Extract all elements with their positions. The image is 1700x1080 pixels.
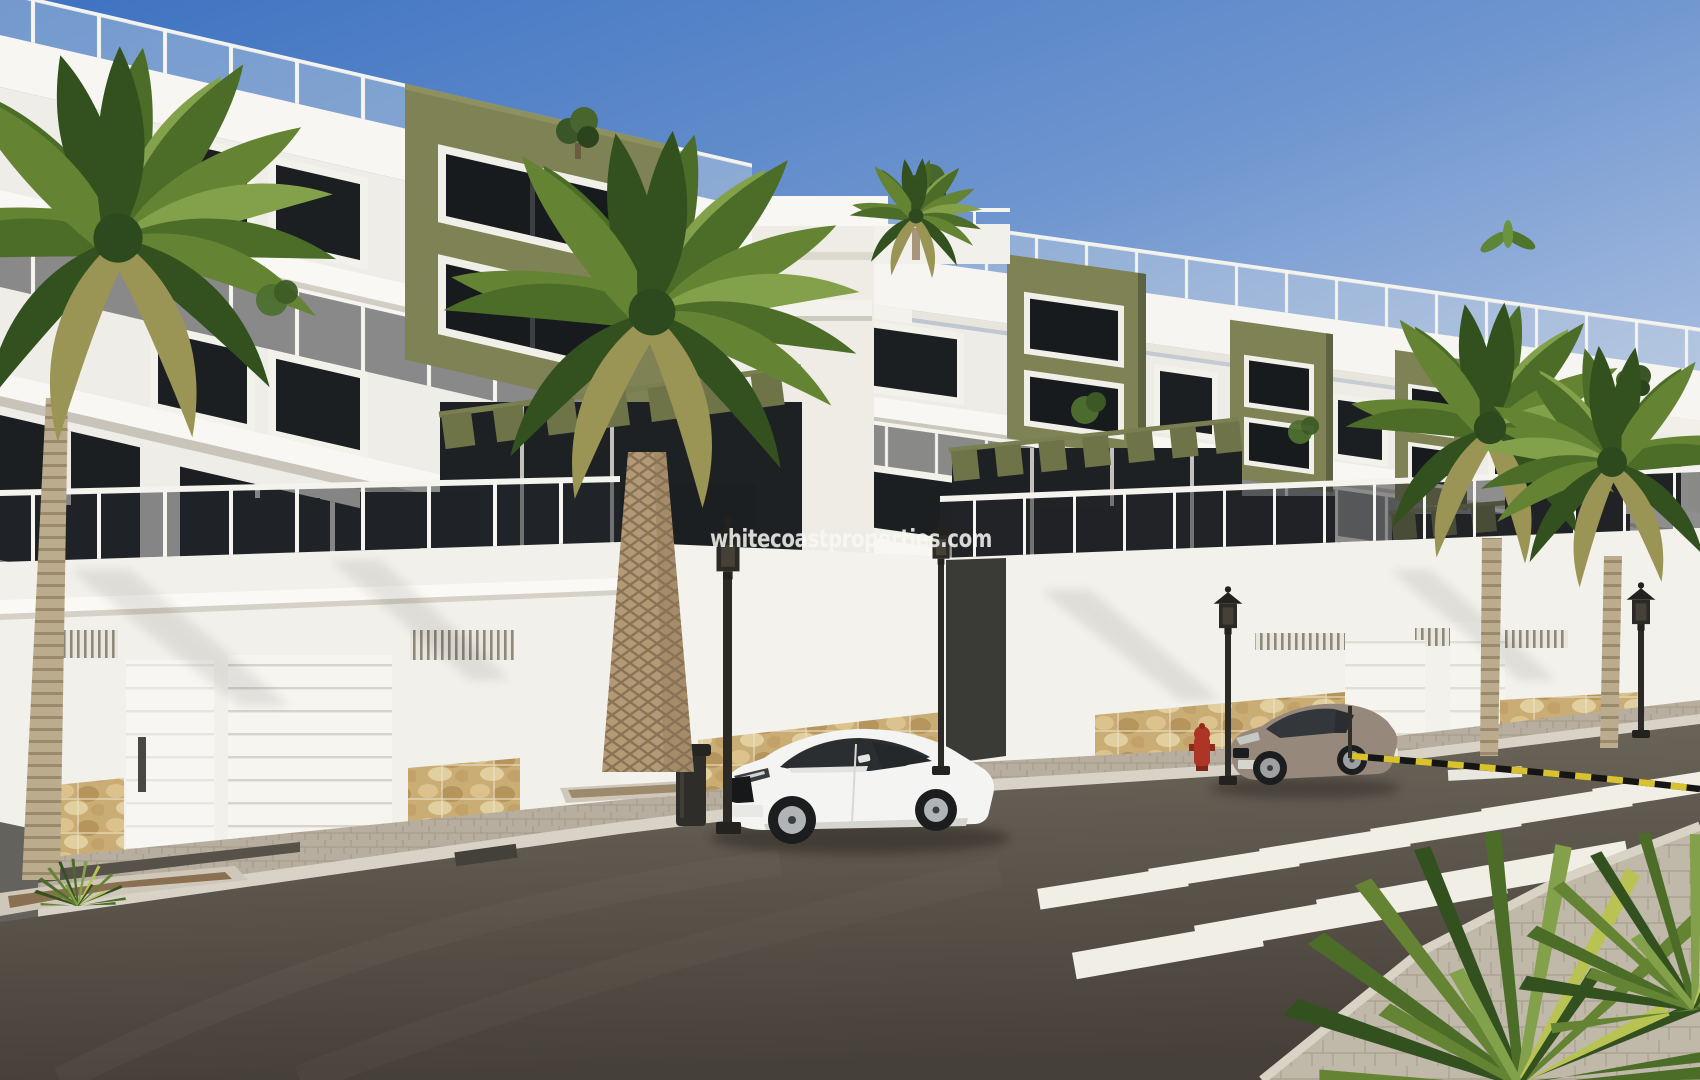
wall-recess — [946, 558, 1006, 764]
olive-accent-panel — [1007, 254, 1146, 458]
pedestrian-door — [126, 660, 214, 852]
door-handle — [138, 737, 146, 792]
watermark-text: whitecoastproperties.com — [710, 524, 992, 553]
property-photo: whitecoastproperties.com — [0, 0, 1700, 1080]
license-plate — [727, 805, 763, 817]
render-scene: whitecoastproperties.com — [0, 0, 1700, 1080]
olive-accent-panel — [1230, 320, 1333, 492]
